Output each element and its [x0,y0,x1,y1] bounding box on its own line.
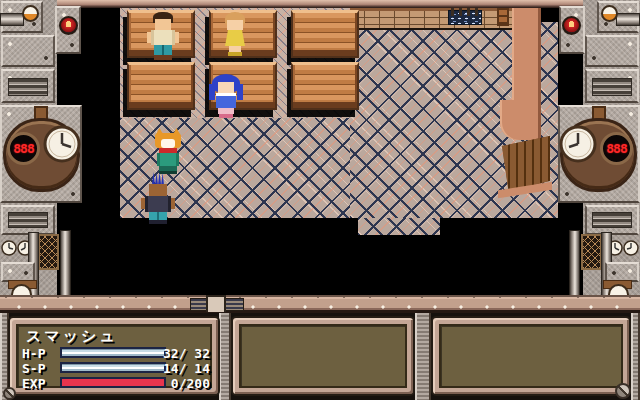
cable-clamp [206,295,226,312]
pipe [0,13,24,26]
vent-icon [8,212,48,228]
npc-woman-yellow [220,12,250,56]
wall-bracket [497,8,509,26]
frame-top-bar [0,0,640,8]
character-name: スマッシュ [26,328,118,343]
red-emblem-icon [562,16,581,35]
clock-gauge-icon [43,125,81,163]
pipe [60,230,71,296]
wall-post [451,8,454,16]
floor-brick-notch [358,218,440,235]
screw-icon [3,387,16,400]
red-emblem-icon [59,16,78,35]
hp-value: 32/ 32 [150,347,210,360]
pipe [616,13,640,26]
message-panel [231,316,415,396]
wall-post [475,8,478,16]
npc-punk-mohawk [140,172,176,224]
wall-post [459,8,462,16]
lattice-grille-icon [581,234,602,270]
back-wall [350,8,512,30]
pressure-gauge-icon [22,5,39,22]
vent-icon [592,78,632,96]
lattice-grille-icon [38,234,59,270]
frame-bottom: スマッシュ H-P 32/ 32 S-P 14/ 14 EXP 0/200 [0,313,640,400]
npc-fox [150,128,186,174]
dial-icon [1,240,17,256]
game-screen[interactable]: 888 888 スマッシュ H-P 32/ 32 S-P 14/ 14 EXP … [0,0,640,400]
exp-label: EXP [22,377,45,390]
npc-girl-blue [208,74,244,118]
desk [127,62,195,110]
pipe [569,230,580,296]
led-counter: 888 [600,132,633,165]
game-viewport[interactable] [57,8,583,295]
npc-man [146,12,180,60]
clock-gauge-icon [559,125,597,163]
vent-icon [8,78,48,96]
status-panel: スマッシュ H-P 32/ 32 S-P 14/ 14 EXP 0/200 [8,316,220,396]
led-counter: 888 [7,132,40,165]
vent-icon [592,212,632,228]
screw-icon [615,383,631,399]
dial-icon [623,240,639,256]
desk [291,10,359,58]
desk [291,62,359,110]
sp-label: S-P [22,362,45,375]
frame-ledge [0,295,640,313]
wall-post [467,8,470,16]
counter-corner [500,100,541,140]
hp-label: H-P [22,347,45,360]
message-panel [431,316,631,396]
sp-value: 14/ 14 [150,362,210,375]
exp-value: 0/200 [150,377,210,390]
pressure-gauge-icon [601,5,618,22]
